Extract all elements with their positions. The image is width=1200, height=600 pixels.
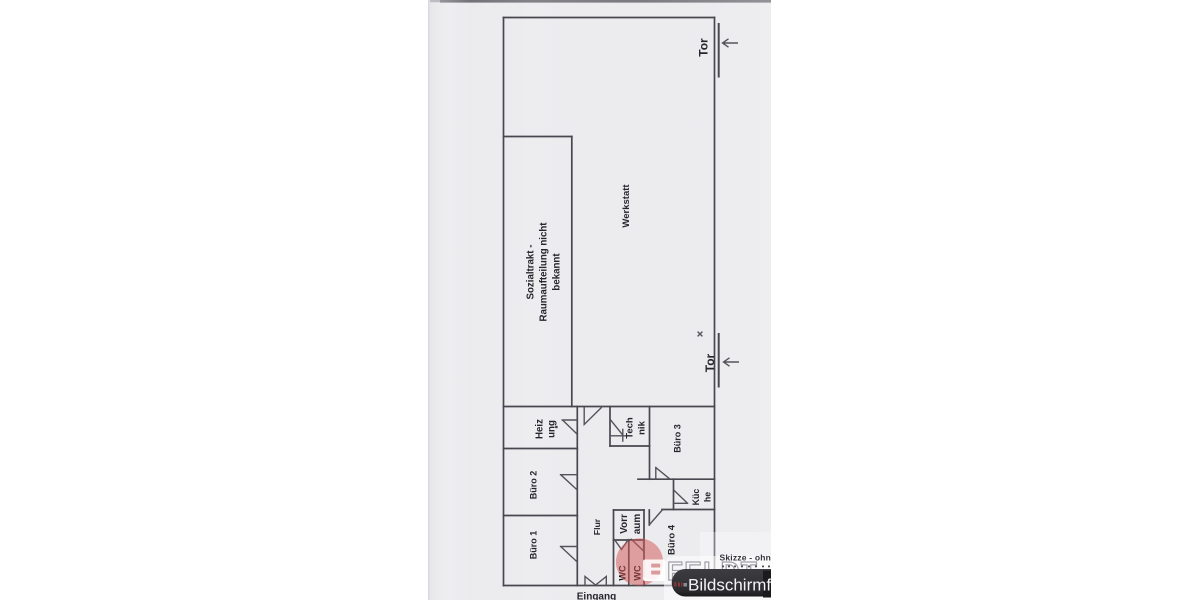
svg-text:Flur: Flur [592, 518, 602, 535]
svg-text:bekannt: bekannt [552, 253, 563, 291]
svg-text:Sozialtrakt -: Sozialtrakt - [526, 245, 537, 300]
svg-text:Tor: Tor [697, 38, 711, 57]
svg-text:nik: nik [637, 420, 648, 434]
svg-text:Büro 4: Büro 4 [667, 524, 678, 555]
svg-text:Eingang: Eingang [577, 592, 616, 600]
svg-text:Büro 2: Büro 2 [529, 471, 539, 500]
svg-text:Tech: Tech [625, 417, 636, 439]
svg-text:Büro 3: Büro 3 [673, 424, 683, 453]
svg-text:Küc: Küc [691, 489, 701, 506]
svg-text:ung: ung [547, 420, 558, 438]
svg-text:Heiz: Heiz [535, 419, 546, 439]
svg-text:Tor: Tor [703, 353, 717, 372]
svg-text:Werkstatt: Werkstatt [621, 184, 632, 228]
svg-text:Bildschirmfo: Bildschirmfo [688, 576, 781, 595]
svg-text:he: he [703, 492, 713, 502]
svg-text:Büro 1: Büro 1 [529, 531, 539, 560]
svg-text:aum: aum [632, 514, 643, 535]
svg-text:Skizze - ohne: Skizze - ohne [720, 553, 777, 563]
svg-text:Vorr: Vorr [619, 514, 630, 534]
svg-text:Raumaufteilung nicht: Raumaufteilung nicht [539, 222, 550, 322]
